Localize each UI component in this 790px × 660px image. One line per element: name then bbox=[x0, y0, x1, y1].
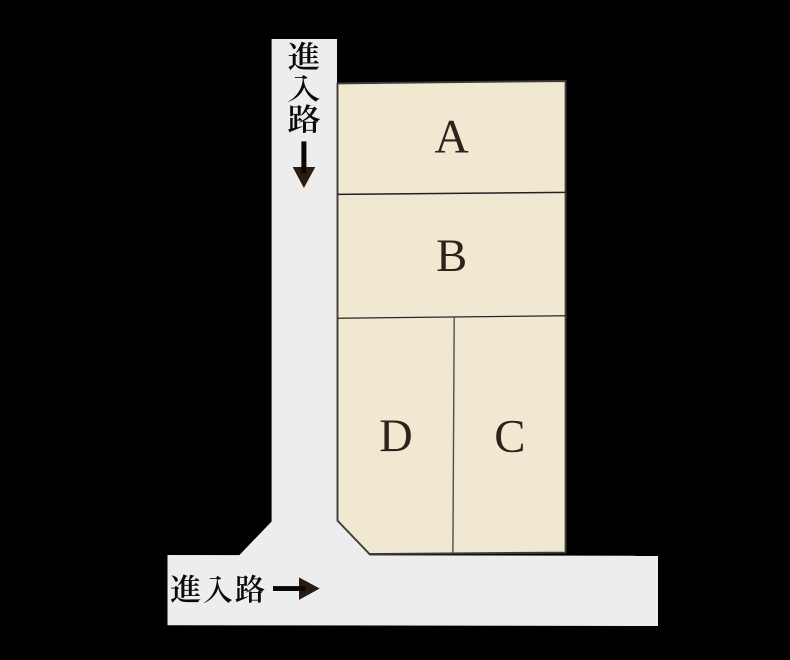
svg-text:B: B bbox=[436, 230, 467, 282]
svg-text:A: A bbox=[434, 111, 468, 163]
svg-text:C: C bbox=[494, 411, 525, 463]
svg-text:D: D bbox=[379, 411, 412, 462]
